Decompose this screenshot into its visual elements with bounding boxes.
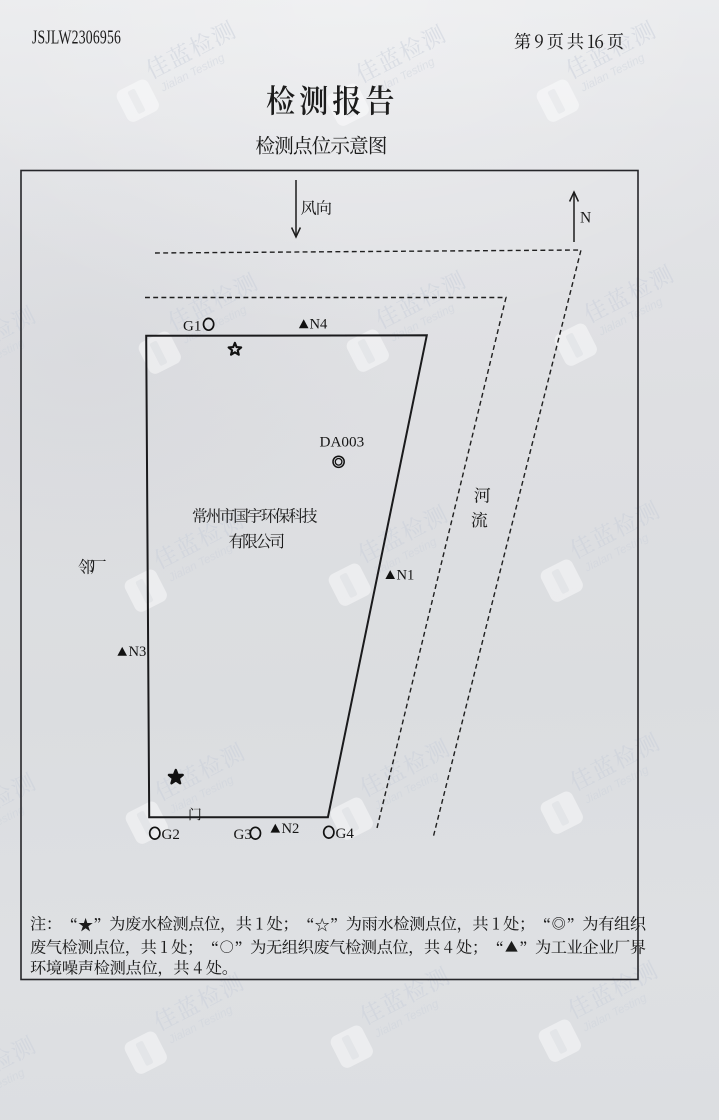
- svg-text:Jialan Testing: Jialan Testing: [166, 542, 235, 585]
- svg-text:Jialan Testing: Jialan Testing: [0, 804, 27, 847]
- svg-text:Jialan Testing: Jialan Testing: [372, 770, 441, 813]
- svg-text:N2: N2: [282, 821, 300, 837]
- svg-text:N1: N1: [397, 567, 415, 583]
- svg-text:G2: G2: [162, 827, 180, 843]
- svg-text:Jialan Testing: Jialan Testing: [580, 992, 649, 1035]
- svg-text:Jialan Testing: Jialan Testing: [158, 52, 227, 95]
- svg-text:G1: G1: [183, 318, 201, 334]
- svg-text:G3: G3: [234, 827, 252, 843]
- svg-text:Jialan Testing: Jialan Testing: [372, 998, 441, 1041]
- svg-text:Jialan Testing: Jialan Testing: [578, 52, 647, 95]
- svg-text:Jialan Testing: Jialan Testing: [0, 1067, 27, 1110]
- svg-text:Jialan Testing: Jialan Testing: [166, 1004, 235, 1047]
- svg-text:Jialan Testing: Jialan Testing: [388, 302, 457, 345]
- svg-text:Jialan Testing: Jialan Testing: [596, 296, 665, 339]
- svg-text:G4: G4: [336, 826, 355, 842]
- svg-text:JSJLW2306956: JSJLW2306956: [32, 26, 121, 48]
- svg-text:N4: N4: [310, 317, 329, 333]
- svg-text:Jialan Testing: Jialan Testing: [582, 532, 651, 575]
- svg-text:N: N: [580, 210, 591, 227]
- svg-text:DA003: DA003: [320, 434, 365, 451]
- svg-text:Jialan Testing: Jialan Testing: [0, 337, 27, 380]
- svg-text:Jialan Testing: Jialan Testing: [368, 56, 437, 99]
- svg-text:Jialan Testing: Jialan Testing: [582, 764, 651, 807]
- svg-text:N3: N3: [129, 644, 147, 660]
